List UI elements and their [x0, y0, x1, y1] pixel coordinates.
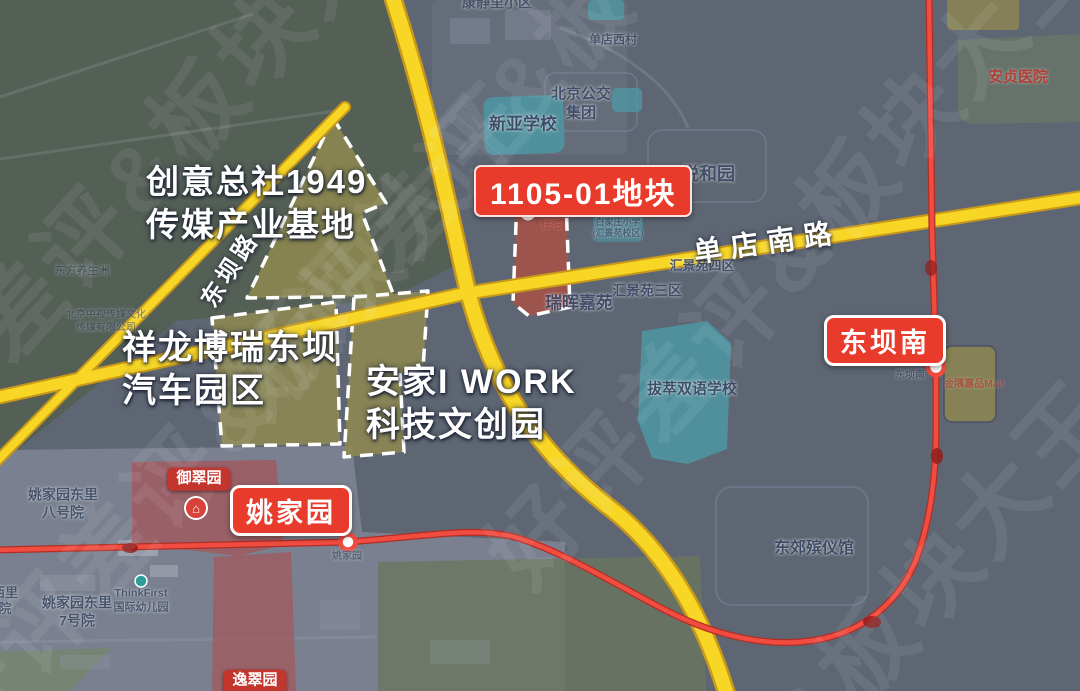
map-screenshot: ⌂ 好评差评&板块大王好评差评&板块大王好评差评&板块大王好评差评&板块大王好评…	[0, 0, 1080, 691]
annotation-area-xianglong: 祥龙博瑞东坝 汽车园区	[122, 327, 338, 413]
plot-badge-1105-01: 1105-01地块	[474, 165, 692, 217]
annotation-line: 安家I WORK	[366, 361, 577, 404]
annotation-line: 汽车园区	[122, 370, 338, 413]
station-badge-yaojiayuan: 姚家园	[230, 485, 352, 536]
annotation-layer: 创意总社1949 传媒产业基地 祥龙博瑞东坝 汽车园区 安家I WORK 科技文…	[0, 0, 1080, 691]
annotation-area-chuangyi: 创意总社1949 传媒产业基地	[146, 160, 367, 246]
annotation-area-anjia: 安家I WORK 科技文创园	[366, 361, 577, 447]
road-label-shandian: 单店南路	[691, 211, 843, 271]
station-badge-dongbanan: 东坝南	[824, 315, 946, 366]
annotation-line: 科技文创园	[366, 404, 577, 447]
annotation-line: 创意总社1949	[146, 160, 367, 203]
annotation-line: 祥龙博瑞东坝	[122, 327, 338, 370]
